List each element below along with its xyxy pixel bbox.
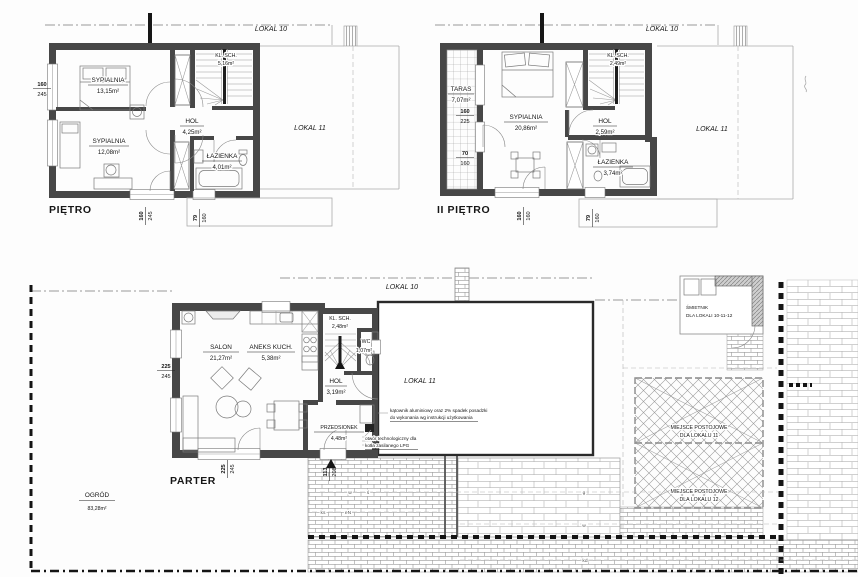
svg-text:w: w xyxy=(582,524,586,529)
garden-label: OGRÓD 83,28m² xyxy=(79,490,115,512)
svg-text:eN: eN xyxy=(345,510,352,516)
room-area: 5,38m² xyxy=(262,355,281,362)
svg-text:160: 160 xyxy=(595,213,601,222)
svg-text:g: g xyxy=(583,491,586,496)
room-area: 5,16m² xyxy=(218,61,234,67)
parking-12-label-2: DLA LOKALU 12 xyxy=(680,497,719,503)
svg-text:225: 225 xyxy=(460,119,469,125)
floor-plan-ii-pietro: LOKAL 10 xyxy=(435,13,806,227)
svg-text:225: 225 xyxy=(221,464,227,473)
room-name: HOL xyxy=(185,118,199,125)
room-name: ŁAZIENKA xyxy=(207,153,239,160)
svg-text:208: 208 xyxy=(332,467,338,476)
drawing-canvas: LOKAL 10 xyxy=(0,0,858,577)
svg-text:kd: kd xyxy=(582,558,587,564)
svg-text:245: 245 xyxy=(148,211,154,220)
floor-title-ii-pietro: II PIĘTRO xyxy=(437,204,490,216)
parking-11-label: MIEJSCE POSTOJOWE xyxy=(671,425,729,431)
ogrod-name: OGRÓD xyxy=(85,490,110,499)
svg-text:160: 160 xyxy=(139,211,145,220)
room-name: TARAS xyxy=(451,86,472,93)
floor-plan-pietro: LOKAL 10 xyxy=(33,13,399,227)
floor-plan-sheet: LOKAL 10 xyxy=(0,0,858,577)
lokal-10-label: LOKAL 10 xyxy=(386,284,418,291)
room-area: 2,48m² xyxy=(332,324,348,330)
svg-text:79: 79 xyxy=(586,215,592,221)
room-name: KL. SCH. xyxy=(215,53,237,59)
parter-walls xyxy=(171,302,381,460)
note-otwor: otwór technologiczny dla xyxy=(365,436,417,441)
room-name: SALON xyxy=(210,344,232,351)
svg-text:160: 160 xyxy=(202,213,208,222)
site-plan-parter: LOKAL 10 LOKAL 11 xyxy=(31,268,858,575)
svg-text:245: 245 xyxy=(161,374,170,380)
svg-text:160: 160 xyxy=(460,109,469,115)
room-area: 2,59m² xyxy=(596,129,615,136)
room-area: 7,07m² xyxy=(452,97,471,104)
parter-staircase xyxy=(325,334,356,369)
floor-title-parter: PARTER xyxy=(170,475,216,487)
note-katownik-2: do wykonania wg instrukcji użytkowania xyxy=(390,415,473,420)
room-name: ANEKS KUCH. xyxy=(249,344,293,351)
ogrod-area: 83,28m² xyxy=(87,506,106,512)
room-name: WC xyxy=(362,339,371,345)
lokal-11-label: LOKAL 11 xyxy=(696,126,728,133)
room-name: ŁAZIENKA xyxy=(598,159,630,166)
parking-11-label-2: DLA LOKALU 11 xyxy=(680,433,719,439)
svg-text:160: 160 xyxy=(460,161,469,167)
room-area: 3,74m² xyxy=(604,170,623,177)
room-name: PRZEDSIONEK xyxy=(320,425,358,431)
party-wall-tick xyxy=(148,13,152,43)
lokal-11-label: LOKAL 11 xyxy=(404,378,436,385)
room-name: SYPIALNIA xyxy=(92,138,126,145)
lokal-10-label: LOKAL 10 xyxy=(646,26,678,33)
svg-text:113: 113 xyxy=(323,467,329,476)
smietnik-label-2: DLA LOKALI 10-11-12 xyxy=(686,313,733,318)
room-area: 4,01m² xyxy=(213,164,232,171)
party-wall-tick xyxy=(540,13,544,43)
room-area: 2,49m² xyxy=(610,61,626,67)
parking-spaces: MIEJSCE POSTOJOWE DLA LOKALU 11 MIEJSCE … xyxy=(635,378,763,508)
lokal-11-label: LOKAL 11 xyxy=(294,125,326,132)
svg-text:225: 225 xyxy=(161,364,170,370)
lokal-10-label: LOKAL 10 xyxy=(255,26,287,33)
floor-title-pietro: PIĘTRO xyxy=(49,204,92,216)
room-area: 4,48m² xyxy=(331,436,347,442)
room-area: 3,19m² xyxy=(327,389,346,396)
room-area: 13,15m² xyxy=(97,88,119,95)
room-area: 1,07m² xyxy=(356,348,372,354)
svg-text:70: 70 xyxy=(462,151,468,157)
svg-text:160: 160 xyxy=(37,82,46,88)
room-area: 12,08m² xyxy=(98,149,120,156)
room-name: KL. SCH. xyxy=(607,53,629,59)
parter-room-labels: SALON 21,27m² ANEKS KUCH. 5,38m² KL. SCH… xyxy=(203,316,372,442)
room-area: 4,25m² xyxy=(183,129,202,136)
svg-text:245: 245 xyxy=(230,464,236,473)
revision-squiggle xyxy=(805,76,807,92)
room-name: KL. SCH. xyxy=(329,316,351,322)
svg-text:w: w xyxy=(348,491,352,496)
svg-text:79: 79 xyxy=(193,215,199,221)
room-name: SYPIALNIA xyxy=(509,114,543,121)
note-otwor-2: kotła zasilanego LPG xyxy=(365,443,410,448)
room-name: HOL xyxy=(329,378,343,385)
room-name: SYPIALNIA xyxy=(91,77,125,84)
room-name: HOL xyxy=(598,118,612,125)
smietnik-label: ŚMIETNIK xyxy=(686,303,709,310)
note-katownik: kątownik aluminiowy oraz 2% spadek posad… xyxy=(390,408,487,413)
svg-text:ks: ks xyxy=(321,510,326,516)
svg-text:245: 245 xyxy=(37,92,46,98)
svg-text:160: 160 xyxy=(517,211,523,220)
room-area: 21,27m² xyxy=(210,355,232,362)
svg-text:160: 160 xyxy=(526,211,532,220)
room-area: 20,86m² xyxy=(515,125,537,132)
